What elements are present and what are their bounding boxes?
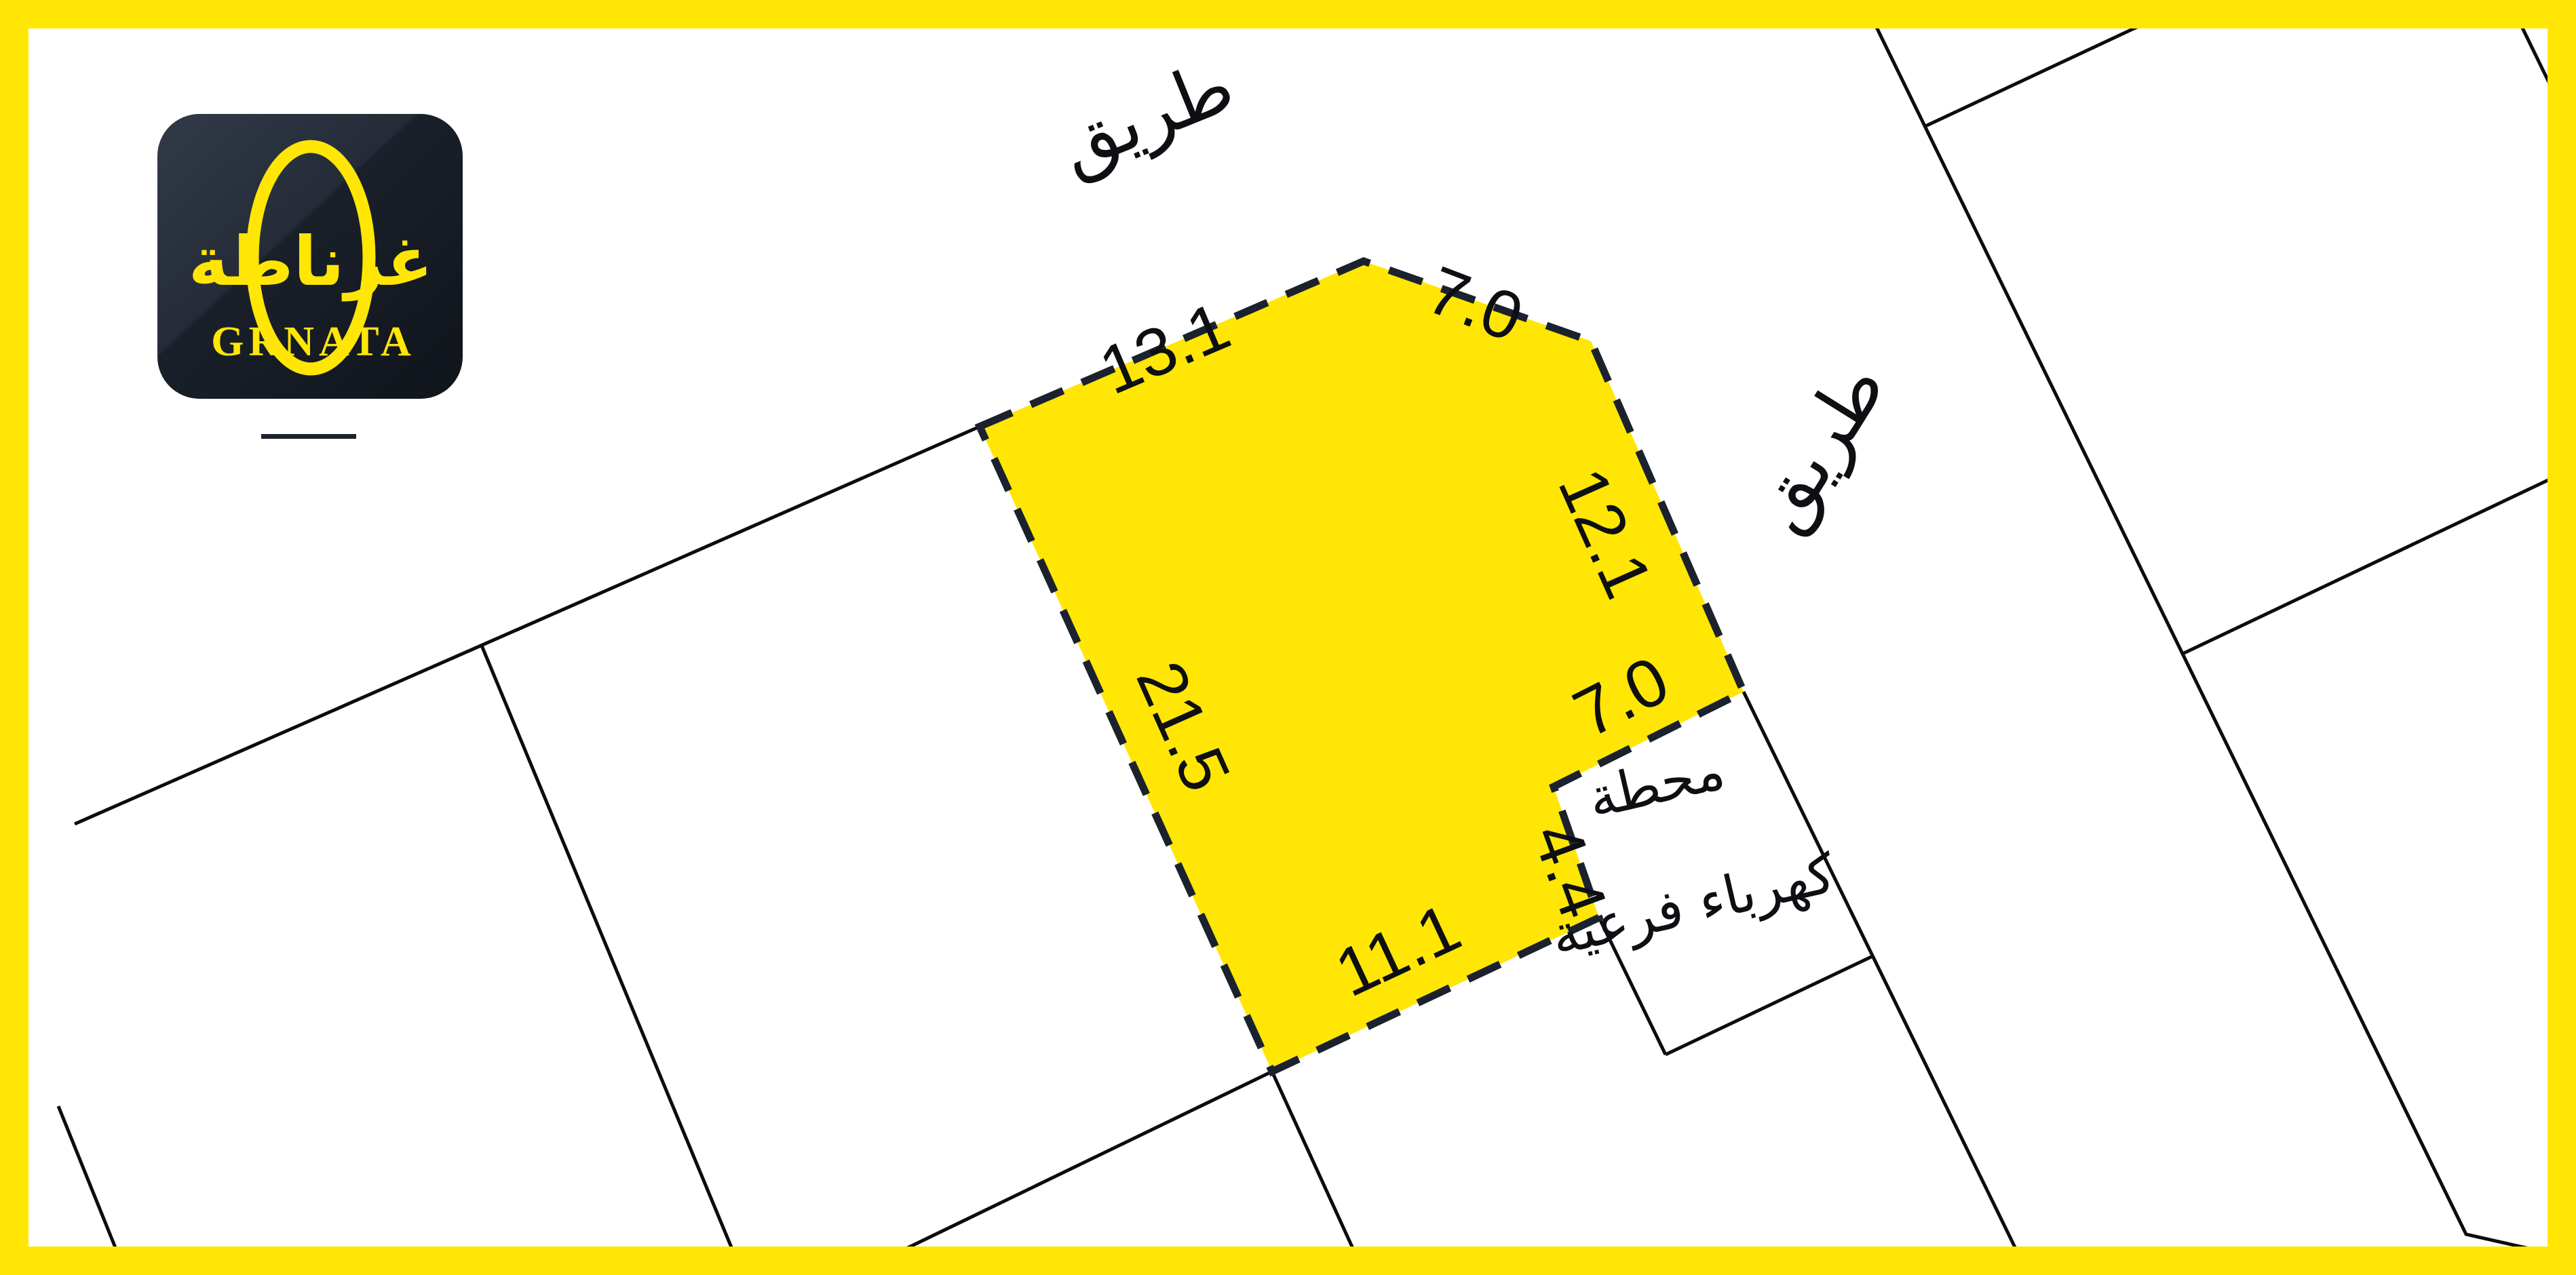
logo-latin-wordmark: GRNATA (211, 319, 415, 365)
logo-arabic-wordmark: غرناطة (189, 222, 433, 302)
grnata-logo: غرناطة GRNATA (157, 114, 463, 439)
logo-underline (261, 434, 356, 439)
plot-map-flyer: 13.1 7.0 12.1 7.0 4.4 11.1 21.5 طريق طري… (0, 0, 2576, 1275)
cadastral-map-canvas: 13.1 7.0 12.1 7.0 4.4 11.1 21.5 طريق طري… (0, 0, 2576, 1275)
